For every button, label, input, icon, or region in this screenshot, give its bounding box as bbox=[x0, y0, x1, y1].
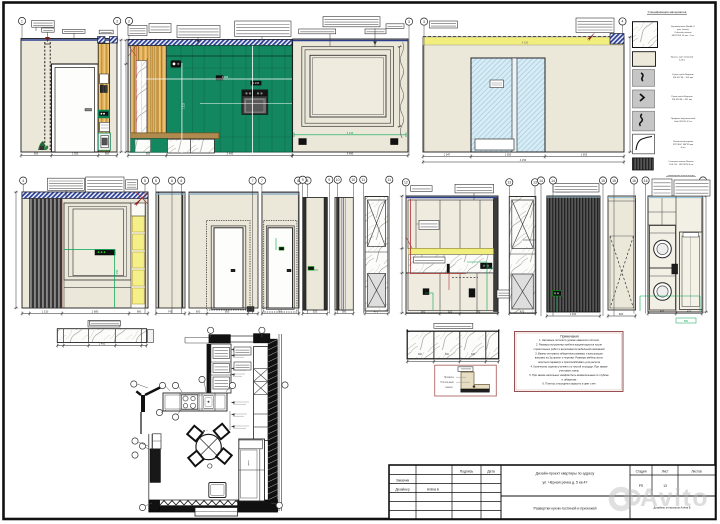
svg-text:745: 745 bbox=[168, 310, 173, 314]
svg-text:600: 600 bbox=[445, 353, 450, 356]
svg-text:Ручка-скоба Вергина: Ручка-скоба Вергина bbox=[671, 96, 693, 98]
svg-text:600*1200 12 мм - 2 шт: 600*1200 12 мм - 2 шт bbox=[672, 35, 695, 37]
svg-text:3 480: 3 480 bbox=[347, 152, 354, 156]
svg-text:900: 900 bbox=[225, 310, 230, 314]
svg-text:Потолочный: Потолочный bbox=[440, 381, 454, 384]
svg-text:15: 15 bbox=[601, 179, 605, 183]
svg-text:12: 12 bbox=[404, 181, 408, 185]
svg-text:800: 800 bbox=[146, 152, 151, 156]
svg-text:2 480: 2 480 bbox=[227, 152, 234, 156]
svg-text:4: 4 bbox=[622, 20, 624, 24]
svg-text:Calacatta панель: Calacatta панель bbox=[674, 31, 692, 34]
svg-text:6: 6 bbox=[180, 179, 182, 183]
svg-text:10: 10 bbox=[336, 178, 340, 182]
svg-text:Керамогранит Marble X: Керамогранит Marble X bbox=[671, 25, 695, 28]
svg-text:Профиль вертикальный: Профиль вертикальный bbox=[671, 117, 696, 120]
svg-text:карниз: карниз bbox=[445, 387, 452, 389]
svg-text:носиться параметр и приспосабл: носиться параметр и приспосабливать для … bbox=[538, 360, 601, 364]
svg-text:Дизайн-проект квартиры по адре: Дизайн-проект квартиры по адресу bbox=[536, 472, 595, 476]
svg-text:14: 14 bbox=[539, 179, 543, 183]
svg-text:2 680: 2 680 bbox=[92, 310, 99, 314]
svg-text:9: 9 bbox=[302, 178, 304, 182]
svg-text:4: 4 bbox=[22, 179, 24, 183]
svg-text:2,25 м: 2,25 м bbox=[679, 60, 686, 62]
svg-text:3 434: 3 434 bbox=[347, 131, 354, 135]
svg-text:2: 2 bbox=[116, 19, 118, 23]
svg-text:Стадия: Стадия bbox=[636, 470, 647, 474]
svg-text:450: 450 bbox=[116, 269, 119, 274]
svg-text:5. При заказе напольных шкафов: 5. При заказе напольных шкафов быть вним… bbox=[529, 373, 609, 377]
svg-text:6: 6 bbox=[171, 179, 173, 183]
svg-text:1 300: 1 300 bbox=[72, 152, 79, 156]
svg-text:11: 11 bbox=[388, 178, 392, 182]
svg-text:4 150: 4 150 bbox=[520, 158, 527, 162]
svg-text:2. Размеры встроенных мебели к: 2. Размеры встроенных мебели корректирую… bbox=[536, 343, 603, 347]
svg-text:1 400: 1 400 bbox=[222, 76, 229, 79]
svg-text:2: 2 bbox=[128, 19, 130, 23]
svg-text:520: 520 bbox=[448, 310, 453, 314]
svg-text:1: 1 bbox=[21, 19, 23, 23]
svg-text:Профиль: Профиль bbox=[444, 376, 455, 379]
svg-text:3: 3 bbox=[408, 20, 410, 24]
svg-text:7: 7 bbox=[261, 179, 263, 183]
svg-text:3. Важно учитывать габаритные: 3. Важно учитывать габаритные размеры и … bbox=[535, 351, 603, 355]
svg-text:вписаны на 3д проект и чертежи: вписаны на 3д проект и чертежи. Размеры … bbox=[535, 356, 604, 360]
svg-text:600: 600 bbox=[418, 353, 423, 356]
svg-text:1 213: 1 213 bbox=[184, 102, 186, 108]
svg-text:600: 600 bbox=[105, 152, 110, 156]
svg-text:Дизайнер: Дизайнер bbox=[395, 488, 409, 492]
svg-text:14: 14 bbox=[551, 179, 555, 183]
svg-text:Краска, цвет бежевый: Краска, цвет бежевый bbox=[671, 56, 694, 59]
svg-text:380: 380 bbox=[342, 310, 347, 314]
svg-text:16: 16 bbox=[644, 179, 648, 183]
svg-text:2 400: 2 400 bbox=[99, 342, 106, 346]
svg-text:Стеновая панель Велюкс: Стеновая панель Велюкс bbox=[668, 161, 695, 163]
svg-text:1 213: 1 213 bbox=[253, 82, 260, 85]
svg-text:1 500: 1 500 bbox=[505, 153, 512, 157]
svg-text:4 150: 4 150 bbox=[522, 41, 529, 45]
svg-text:Avito: Avito bbox=[640, 484, 709, 512]
svg-text:Лист: Лист bbox=[662, 470, 669, 474]
svg-text:760: 760 bbox=[278, 310, 283, 314]
svg-text:600: 600 bbox=[196, 310, 201, 314]
svg-text:1 603: 1 603 bbox=[581, 153, 588, 157]
svg-text:600: 600 bbox=[34, 152, 39, 156]
svg-text:Ручка-скоба Вергина: Ручка-скоба Вергина bbox=[672, 74, 694, 76]
svg-text:Дата: Дата bbox=[487, 470, 495, 474]
svg-text:520: 520 bbox=[313, 310, 318, 314]
svg-text:16: 16 bbox=[632, 179, 636, 183]
svg-text:4. Количество отделки уточнять: 4. Количество отделки уточнять по чистой… bbox=[530, 364, 608, 368]
svg-text:Примечания: Примечания bbox=[560, 335, 579, 339]
svg-text:15: 15 bbox=[612, 179, 616, 183]
svg-text:6. Плинтус и молдинги окрасить: 6. Плинтус и молдинги окрасить в цвет ст… bbox=[542, 382, 596, 386]
svg-text:470: 470 bbox=[520, 310, 525, 314]
svg-text:10: 10 bbox=[351, 178, 355, 182]
svg-text:ул. Чёрная речка д. 5 кв.47: ул. Чёрная речка д. 5 кв.47 bbox=[542, 481, 587, 485]
svg-text:7: 7 bbox=[252, 179, 254, 183]
svg-text:980: 980 bbox=[476, 310, 481, 314]
svg-text:КПЛ 80С 180*30 мм: КПЛ 80С 180*30 мм bbox=[673, 144, 694, 146]
svg-text:5: 5 bbox=[144, 179, 146, 183]
svg-text:13: 13 bbox=[507, 181, 511, 185]
svg-text:1 047: 1 047 bbox=[444, 153, 451, 157]
svg-text:3: 3 bbox=[423, 20, 425, 24]
svg-text:1 310: 1 310 bbox=[42, 310, 49, 314]
svg-text:Потолочный карниз: Потолочный карниз bbox=[673, 140, 693, 143]
svg-text:RS 427 BL - 100 мм: RS 427 BL - 100 мм bbox=[673, 77, 693, 79]
svg-text:11: 11 bbox=[362, 178, 366, 182]
svg-text:590: 590 bbox=[684, 320, 689, 323]
svg-text:470: 470 bbox=[374, 310, 379, 314]
svg-text:строительных работ и выполняют: строительных работ и выполняются мебельн… bbox=[533, 347, 605, 351]
svg-text:Gola 391 BL 4,2 м: Gola 391 BL 4,2 м bbox=[674, 121, 692, 123]
svg-text:8: 8 bbox=[307, 179, 309, 183]
svg-text:900: 900 bbox=[421, 310, 426, 314]
svg-text:1. Натяжные потолки в уровне н: 1. Натяжные потолки в уровне навесного п… bbox=[539, 338, 599, 342]
svg-text:Спецификация материалов: Спецификация материалов bbox=[648, 10, 687, 14]
svg-text:1 200: 1 200 bbox=[570, 312, 577, 316]
svg-text:RS 426 BL - 351 мм: RS 426 BL - 351 мм bbox=[672, 99, 692, 101]
svg-text:600: 600 bbox=[687, 310, 692, 314]
svg-text:учитывать запас: учитывать запас bbox=[559, 370, 580, 373]
svg-text:Т-06 СН - 160*2670 8 шт: Т-06 СН - 160*2670 8 шт bbox=[669, 164, 694, 166]
svg-text:цвет белый,: цвет белый, bbox=[677, 28, 690, 31]
svg-text:600: 600 bbox=[660, 310, 665, 314]
svg-text:600: 600 bbox=[471, 353, 476, 356]
svg-text:Алёна Б: Алёна Б bbox=[427, 488, 439, 492]
svg-text:диван: диван bbox=[248, 460, 250, 466]
svg-text:680: 680 bbox=[137, 310, 142, 314]
svg-text:Подпись: Подпись bbox=[460, 470, 474, 474]
svg-text:5: 5 bbox=[155, 179, 157, 183]
svg-text:Листов: Листов bbox=[691, 470, 702, 474]
svg-text:Заказчик: Заказчик bbox=[396, 479, 410, 483]
svg-text:13: 13 bbox=[533, 181, 537, 185]
svg-text:9: 9 bbox=[328, 178, 330, 182]
svg-text:и габаритам: и габаритам bbox=[562, 377, 577, 381]
svg-text:600: 600 bbox=[619, 312, 624, 316]
svg-text:Развертки кухни-гостиной и при: Развертки кухни-гостиной и прихожей bbox=[533, 507, 596, 511]
